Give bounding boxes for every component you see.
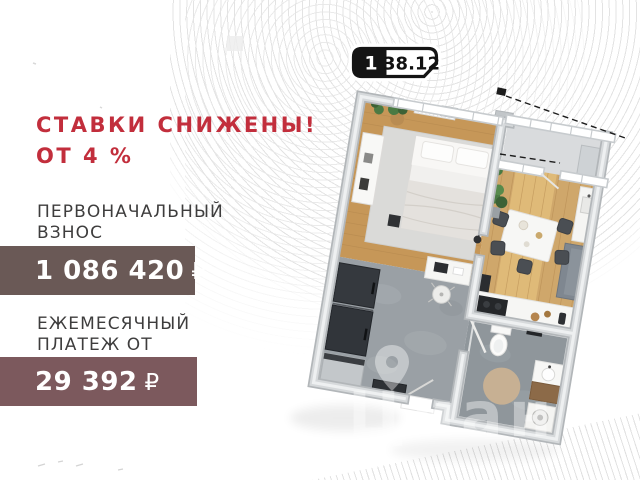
floorplan-render: Циан 1 38.12 [0,0,640,480]
decor-dashes [38,461,123,470]
bedside-stool [387,214,401,228]
unit-info-badge: 1 38.12 [354,49,440,77]
dimension-marker [496,87,506,96]
badge-rooms-count: 1 [364,53,377,75]
watermark-text: Циан [348,378,558,451]
badge-area-value: 38.12 [383,54,440,75]
decor-square-artifact [227,36,243,51]
decor-speck [33,63,102,108]
listing-promo-banner: СТАВКИ СНИЖЕНЫ! ОТ 4 % ПЕРВОНАЧАЛЬНЫЙ ВЗ… [0,0,640,480]
